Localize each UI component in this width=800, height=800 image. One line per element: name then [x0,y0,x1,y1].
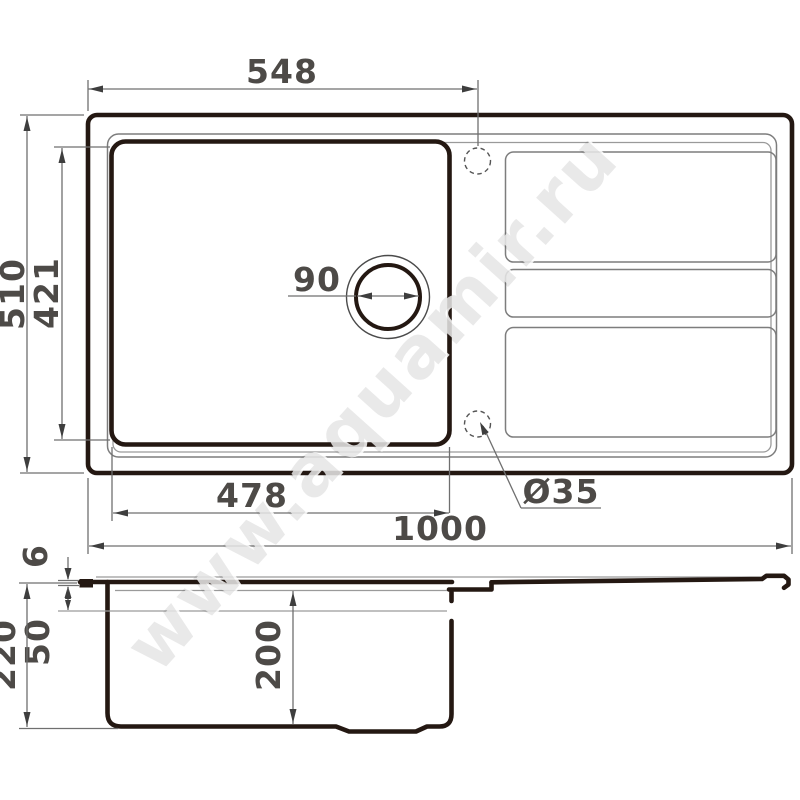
dimension-hole-35: Ø35 [477,421,601,511]
arrowhead-down [24,712,31,726]
arrowhead-up [290,592,297,606]
arrowhead-down [24,457,31,471]
arrowhead-up [24,585,31,599]
dimension-421: 421 [27,147,110,440]
arrowhead-down [65,568,72,580]
dim-1000-label: 1000 [392,509,488,548]
dim-200-label: 200 [249,619,288,691]
arrowhead-down [290,709,297,723]
arrowhead-up [59,149,66,163]
dimension-220: 220 [0,583,118,729]
dimension-50: 50 [18,588,71,666]
bowl-to-drainboard-step [449,582,492,589]
arrowhead-right [462,86,476,93]
arrowhead-up [24,117,31,131]
dim-o35-label: Ø35 [523,472,600,511]
leader-arrowhead [477,421,489,436]
dimension-548: 548 [88,52,478,146]
dim-6-label: 6 [16,544,55,568]
dim-90-label: 90 [293,260,341,299]
arrowhead-down [65,600,71,610]
drawing-canvas: 548 510 421 90 478 1000 [0,0,800,800]
arrowhead-right [776,543,790,550]
sink-technical-drawing: 548 510 421 90 478 1000 [0,0,800,800]
arrowhead-left [89,86,103,93]
arrowhead-down [59,424,66,438]
dim-548-label: 548 [246,52,318,91]
leader-line [483,426,521,508]
faucet-hole-top [465,148,491,174]
dim-220-label: 220 [0,619,23,691]
arrowhead-left [90,543,104,550]
arrowhead-left [114,510,128,517]
drainboard-panel-3 [506,328,777,438]
dim-421-label: 421 [27,257,66,329]
drainboard-panel-2 [506,270,777,318]
dim-50-label: 50 [18,618,57,666]
